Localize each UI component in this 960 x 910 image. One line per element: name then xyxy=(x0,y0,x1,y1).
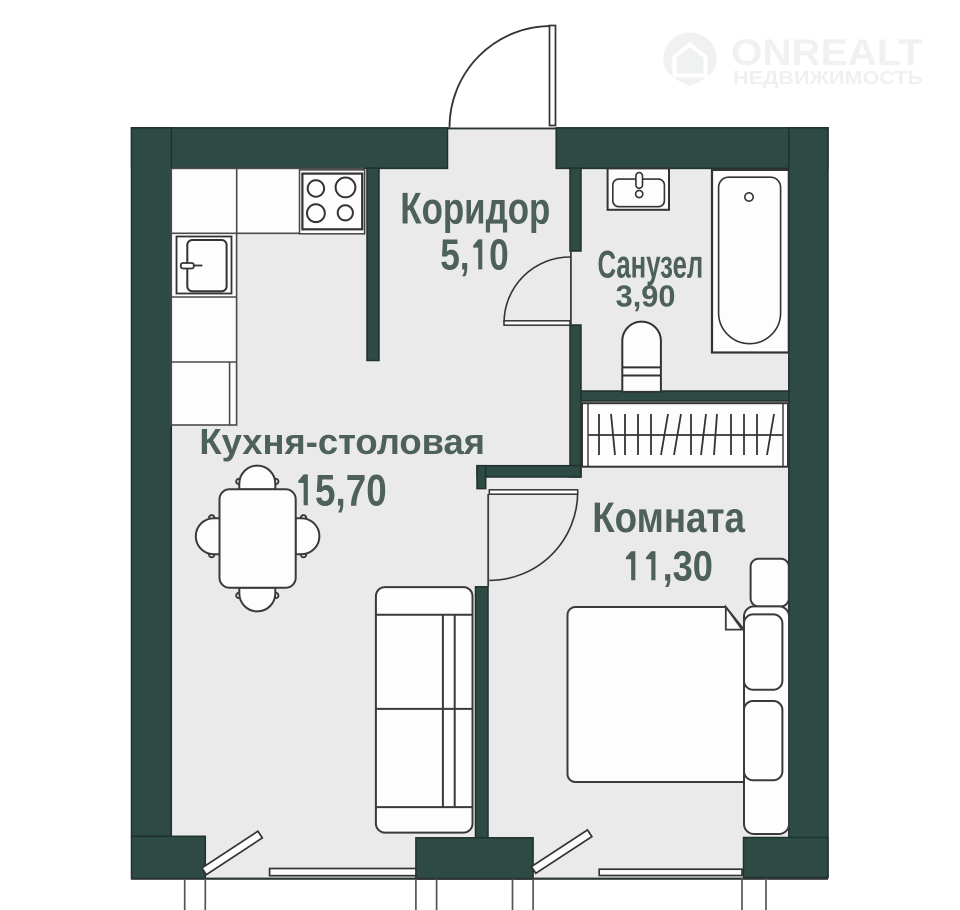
svg-text:0: 0 xyxy=(693,543,713,590)
svg-text:5: 5 xyxy=(440,231,460,279)
svg-text:НЕДВИЖИМОСТЬ: НЕДВИЖИМОСТЬ xyxy=(733,67,923,88)
svg-text:7: 7 xyxy=(346,465,366,515)
svg-text:3: 3 xyxy=(673,543,693,590)
svg-text:Комната: Комната xyxy=(592,494,746,542)
svg-text:5: 5 xyxy=(315,465,335,515)
svg-text:Кухня-столовая: Кухня-столовая xyxy=(199,421,485,462)
svg-text:0: 0 xyxy=(489,231,509,279)
svg-text:0: 0 xyxy=(366,465,386,515)
svg-text:Коридор: Коридор xyxy=(400,185,550,234)
svg-text:,: , xyxy=(663,543,673,590)
svg-text:,: , xyxy=(460,231,470,279)
svg-text:,: , xyxy=(336,465,346,515)
svg-text:3,90: 3,90 xyxy=(616,278,676,313)
